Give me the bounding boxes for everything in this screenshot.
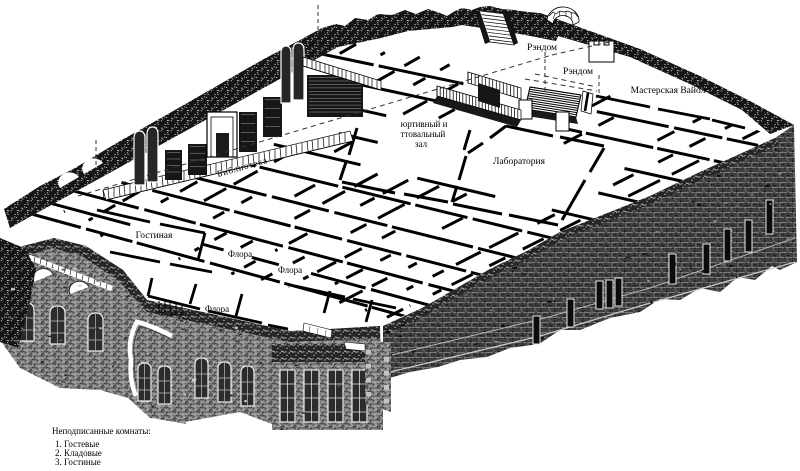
svg-text:Неподписанные комнаты:: Неподписанные комнаты: bbox=[52, 426, 151, 436]
svg-text:Гостиная: Гостиная bbox=[136, 231, 173, 241]
svg-text:зал: зал bbox=[415, 139, 428, 149]
svg-text:Флора: Флора bbox=[205, 304, 229, 314]
svg-text:Рэндом: Рэндом bbox=[563, 67, 593, 77]
svg-text:Флора: Флора bbox=[228, 249, 252, 259]
svg-text:Лаборатория: Лаборатория bbox=[493, 156, 546, 167]
svg-text:Флора: Флора bbox=[278, 265, 302, 275]
svg-text:Рэндом: Рэндом bbox=[527, 43, 557, 53]
svg-text:3. Гостиные: 3. Гостиные bbox=[55, 457, 101, 466]
svg-text:ттовальный: ттовальный bbox=[401, 129, 446, 139]
svg-text:Мастерская Вайол: Мастерская Вайол bbox=[631, 85, 706, 96]
svg-text:юртивный и: юртивный и bbox=[401, 119, 448, 129]
